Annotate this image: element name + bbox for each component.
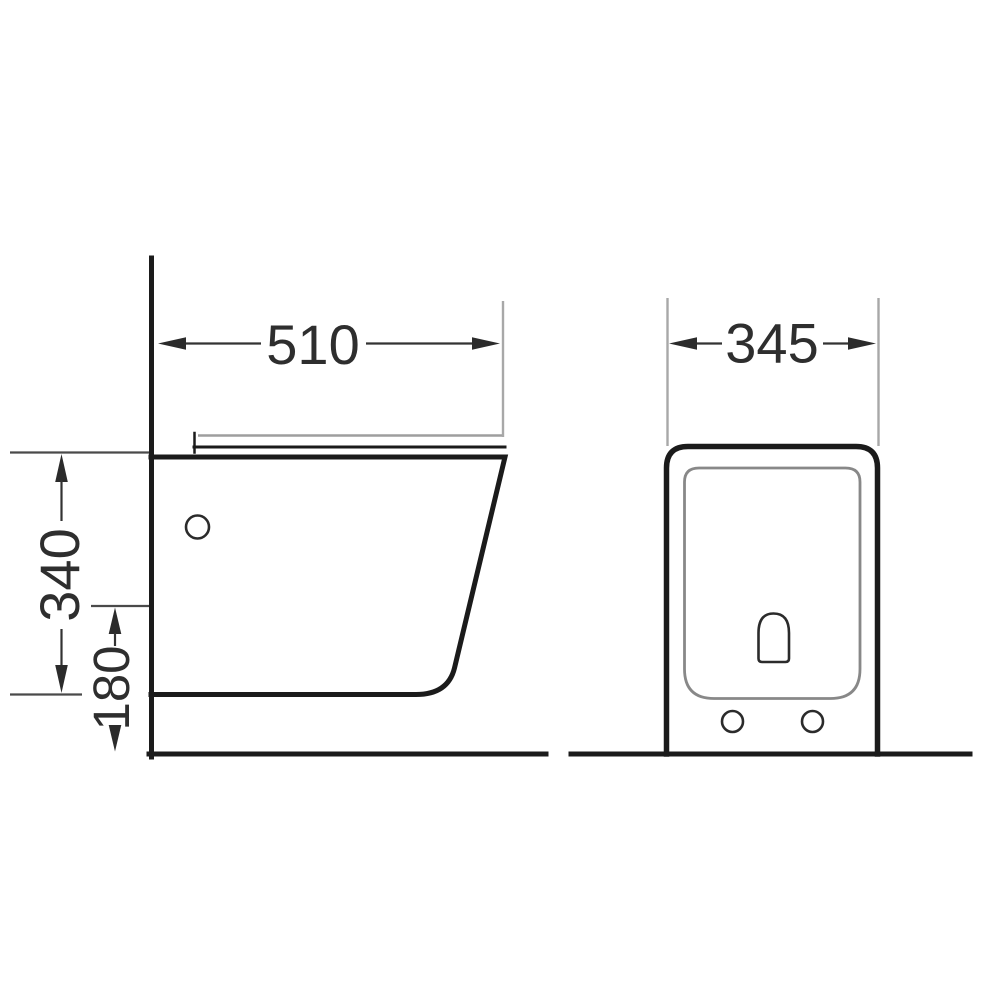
- water-outlet-shape: [759, 614, 790, 663]
- seat-inner-rim: [685, 468, 861, 699]
- arrow-right-icon: [472, 337, 500, 350]
- dimension-front-width: 345: [668, 298, 879, 446]
- dimension-value-height: 340: [28, 528, 91, 621]
- dimension-value-depth: 510: [266, 313, 359, 376]
- technical-drawing-canvas: 510 340 180: [0, 0, 1000, 1000]
- arrow-up-icon: [55, 454, 68, 482]
- arrow-down-icon: [55, 665, 68, 693]
- dimension-outlet-height: 180: [83, 606, 149, 752]
- front-view: [571, 447, 970, 755]
- dimension-side-depth: 510: [158, 301, 503, 437]
- arrow-left-icon: [158, 337, 186, 350]
- toilet-body-profile: [151, 457, 505, 695]
- dimension-value-outlet-height: 180: [83, 645, 140, 730]
- arrow-right-icon: [848, 337, 876, 350]
- toilet-body-front: [667, 447, 878, 755]
- side-fixing-hole: [186, 516, 209, 539]
- toilet-dimension-diagram: 510 340 180: [0, 0, 1000, 1000]
- mounting-hole-right: [802, 711, 823, 732]
- dimension-value-front-width: 345: [725, 312, 818, 375]
- arrow-up-icon: [109, 608, 122, 635]
- mounting-hole-left: [722, 711, 743, 732]
- arrow-left-icon: [669, 337, 697, 350]
